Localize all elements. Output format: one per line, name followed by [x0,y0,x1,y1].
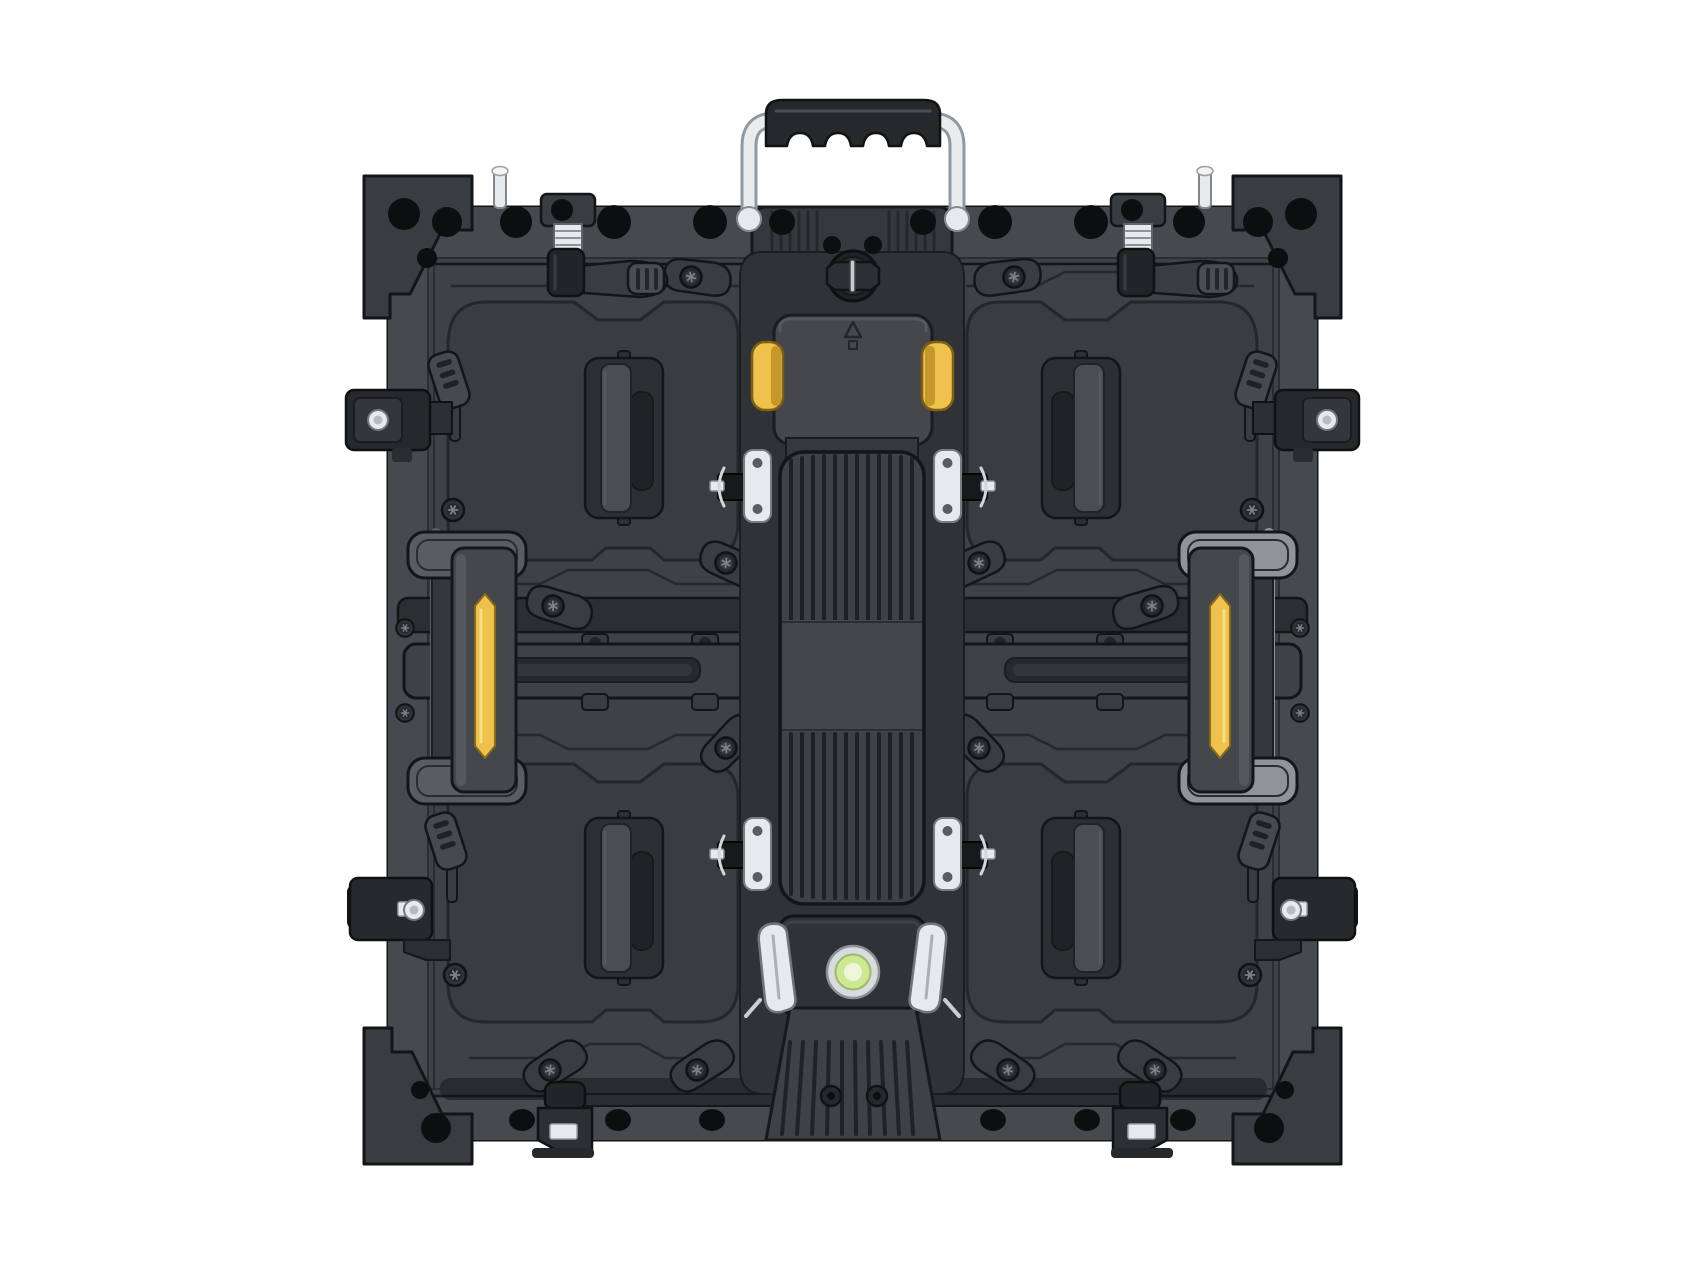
yellow-clip [752,342,783,410]
handle-foot [737,207,761,231]
module-base-flare [766,1008,940,1140]
yellow-clip [922,342,953,410]
top-twist-lock [827,251,879,301]
led-panel-rear-photo [0,0,1707,1280]
spirit-level [827,946,879,998]
handle-foot [945,207,969,231]
module-top-cap [774,315,932,445]
module-smooth-band [783,620,921,732]
module-bottom-box [778,916,926,1014]
photo-stage: Rear view of a square die-cast aluminium… [0,0,1707,1280]
